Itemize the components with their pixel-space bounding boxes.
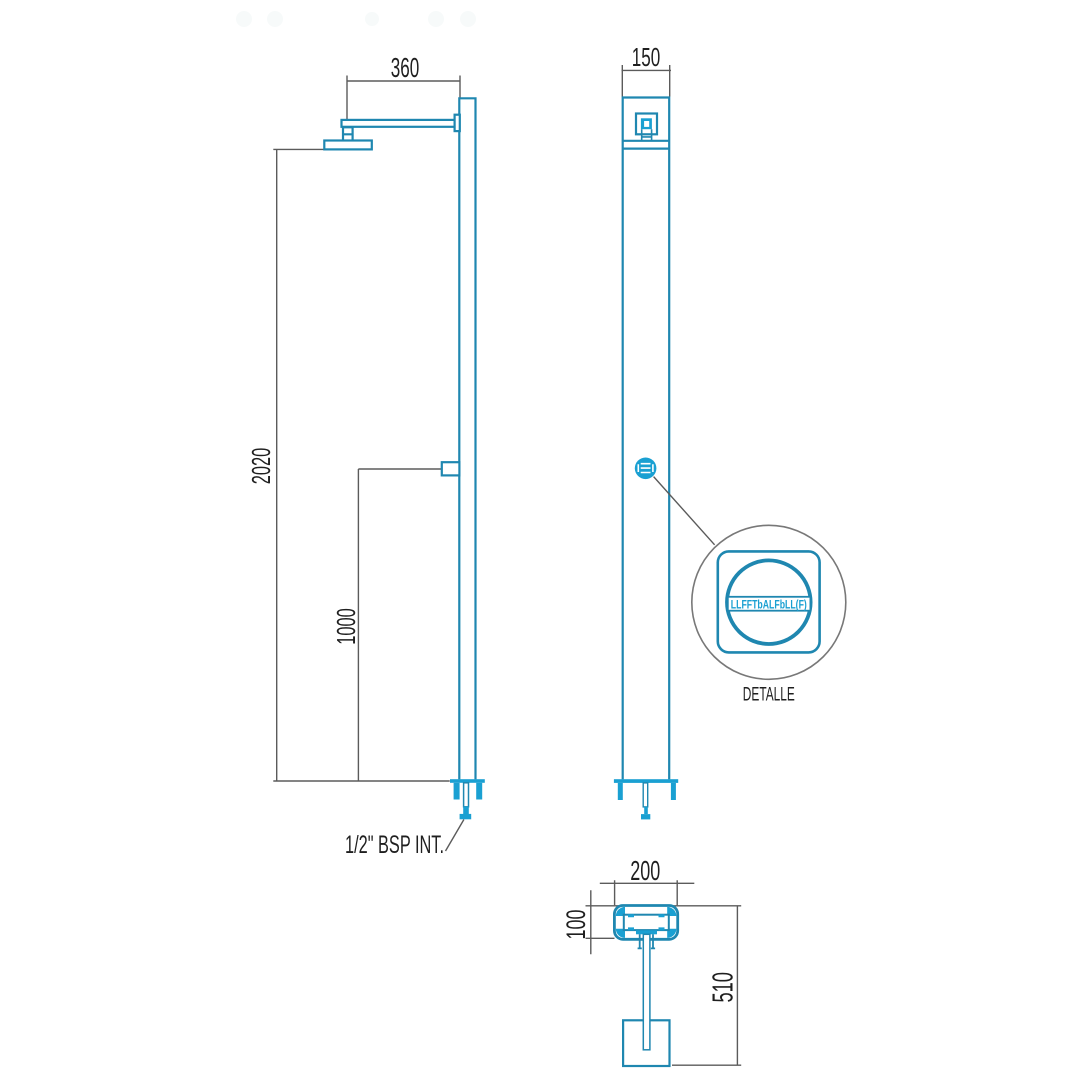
svg-text:2020: 2020 [246, 448, 276, 485]
svg-text:150: 150 [632, 42, 661, 72]
svg-text:1/2" BSP INT.: 1/2" BSP INT. [345, 831, 444, 859]
svg-text:100: 100 [561, 910, 591, 940]
svg-text:200: 200 [630, 855, 660, 886]
svg-text:LLFFTbALFbLL(F): LLFFTbALFbLL(F) [731, 599, 807, 611]
svg-text:DETALLE: DETALLE [743, 685, 795, 706]
svg-text:1000: 1000 [331, 608, 361, 645]
svg-text:510: 510 [708, 972, 740, 1003]
svg-text:360: 360 [391, 52, 420, 83]
